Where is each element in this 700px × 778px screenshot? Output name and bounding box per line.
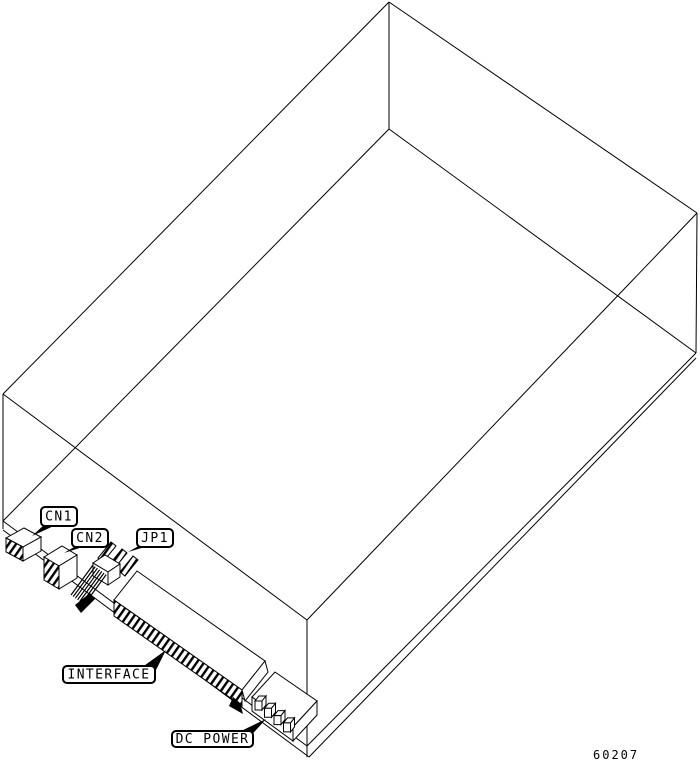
callout-jp1: JP1 (128, 529, 173, 552)
callout-interface: INTERFACE (63, 650, 166, 683)
callout-dc-power: DC POWER (172, 719, 266, 747)
drive-isometric-drawing: CN1 CN2 JP1 INTERFACE DC POWER 60207 (0, 0, 700, 778)
chassis-bottom-face-edges (3, 129, 696, 746)
callout-label-jp1: JP1 (141, 531, 169, 546)
chassis-top-face-edges (3, 2, 697, 620)
callout-label-interface: INTERFACE (67, 668, 150, 683)
callout-label-cn2: CN2 (76, 531, 104, 546)
chassis-wireframe (3, 2, 697, 757)
pin-indicator-arrow-left (75, 593, 95, 613)
callout-cn2: CN2 (64, 529, 108, 553)
chassis-vertical-edges (3, 2, 697, 757)
callout-label-dc-power: DC POWER (176, 732, 250, 747)
figure-disk-drive-diagram: CN1 CN2 JP1 INTERFACE DC POWER 60207 (0, 0, 700, 778)
part-number: 60207 (593, 748, 639, 762)
cn2-connector (44, 546, 77, 589)
interface-connector (75, 571, 268, 714)
callout-label-cn1: CN1 (45, 510, 73, 525)
callout-cn1: CN1 (32, 507, 77, 536)
